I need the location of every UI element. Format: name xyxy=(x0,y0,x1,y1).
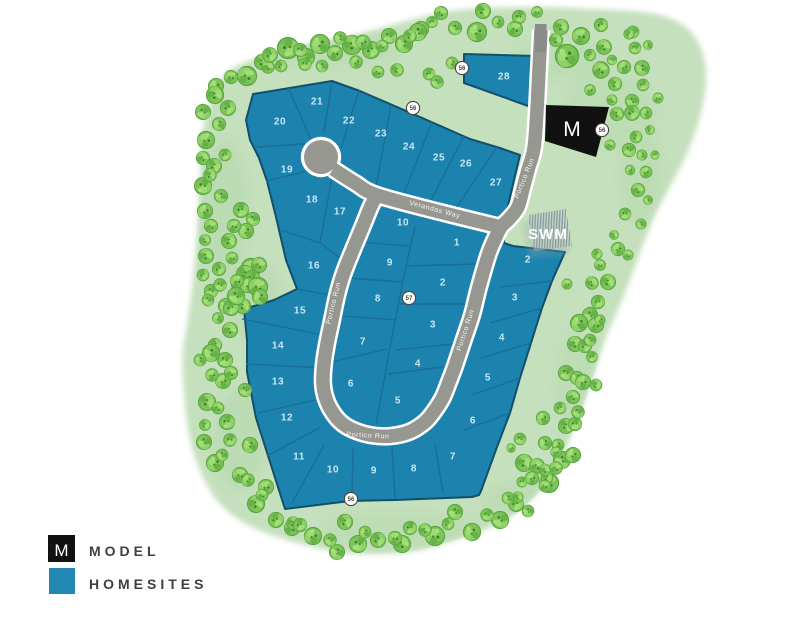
svg-text:56: 56 xyxy=(348,497,355,503)
svg-text:28: 28 xyxy=(498,72,510,83)
svg-text:5: 5 xyxy=(395,396,401,407)
svg-text:7: 7 xyxy=(360,337,366,348)
svg-text:17: 17 xyxy=(334,207,346,218)
svg-text:2: 2 xyxy=(440,278,446,289)
svg-text:23: 23 xyxy=(375,129,387,140)
svg-text:21: 21 xyxy=(311,97,323,108)
svg-text:56: 56 xyxy=(599,128,606,134)
svg-text:25: 25 xyxy=(433,153,445,164)
svg-text:HOMESITES: HOMESITES xyxy=(89,576,207,592)
svg-text:4: 4 xyxy=(415,359,421,370)
svg-text:27: 27 xyxy=(490,178,502,189)
svg-text:3: 3 xyxy=(512,293,518,304)
svg-text:4: 4 xyxy=(499,333,505,344)
svg-text:56: 56 xyxy=(410,106,417,112)
svg-text:MODEL: MODEL xyxy=(89,543,160,559)
svg-text:7: 7 xyxy=(450,452,456,463)
svg-text:12: 12 xyxy=(281,413,293,424)
svg-text:16: 16 xyxy=(308,261,320,272)
svg-text:3: 3 xyxy=(430,320,436,331)
svg-text:8: 8 xyxy=(411,464,417,475)
svg-text:19: 19 xyxy=(281,165,293,176)
svg-text:57: 57 xyxy=(406,296,413,302)
svg-text:14: 14 xyxy=(272,341,284,352)
svg-text:6: 6 xyxy=(348,379,354,390)
svg-text:9: 9 xyxy=(371,466,377,477)
svg-text:8: 8 xyxy=(375,294,381,305)
svg-text:9: 9 xyxy=(387,258,393,269)
svg-text:5: 5 xyxy=(485,373,491,384)
svg-text:10: 10 xyxy=(397,218,409,229)
svg-text:SWM: SWM xyxy=(528,226,568,243)
svg-text:13: 13 xyxy=(272,377,284,388)
svg-text:22: 22 xyxy=(343,116,355,127)
svg-text:26: 26 xyxy=(460,159,472,170)
svg-text:2: 2 xyxy=(525,255,531,266)
svg-text:10: 10 xyxy=(327,465,339,476)
svg-text:6: 6 xyxy=(470,416,476,427)
svg-text:15: 15 xyxy=(294,306,306,317)
svg-text:11: 11 xyxy=(293,452,305,463)
svg-text:M: M xyxy=(54,541,68,560)
svg-text:1: 1 xyxy=(454,238,460,249)
svg-text:56: 56 xyxy=(459,66,466,72)
svg-text:24: 24 xyxy=(403,142,415,153)
svg-text:M: M xyxy=(563,118,581,141)
svg-text:20: 20 xyxy=(274,117,286,128)
svg-text:18: 18 xyxy=(306,195,318,206)
